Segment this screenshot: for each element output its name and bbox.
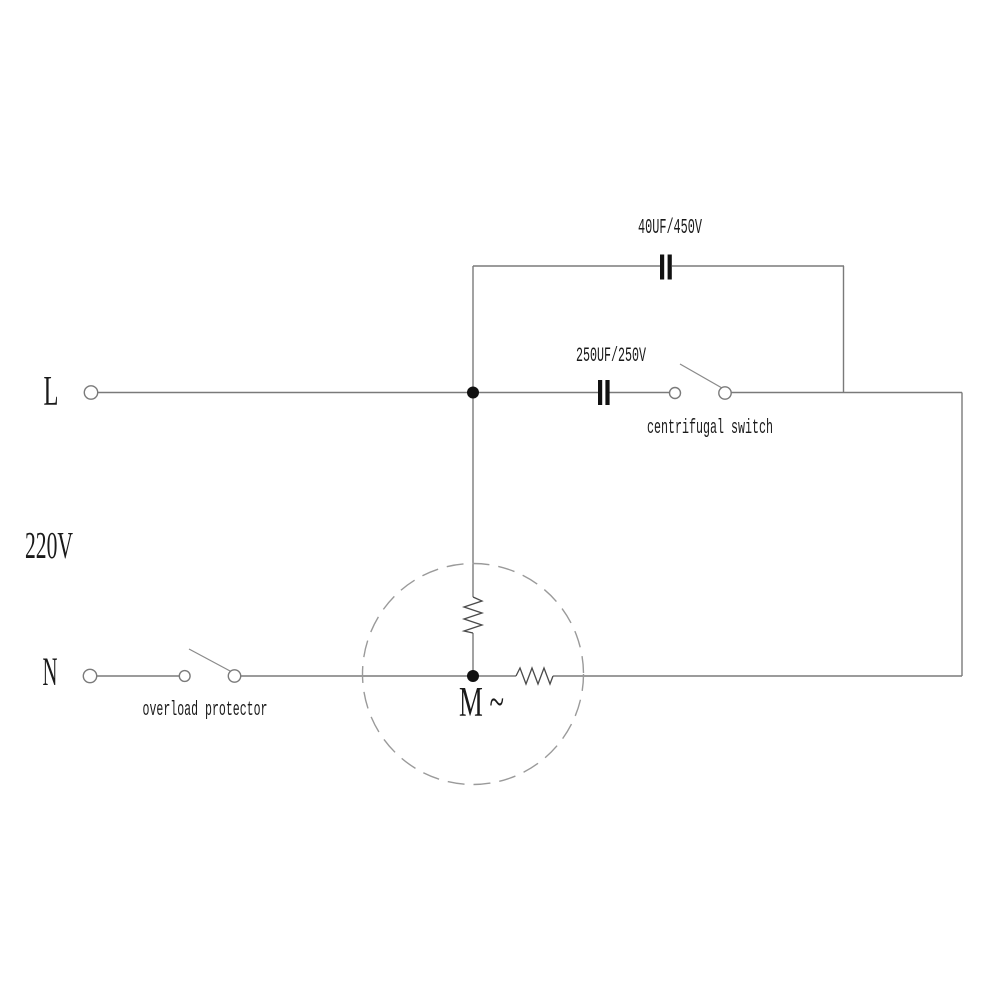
start-winding-resistor (516, 668, 553, 684)
run-capacitor (598, 380, 610, 405)
start-capacitor-plate-left (660, 255, 664, 280)
overload-protector-contact-left (179, 671, 190, 682)
overload-protector-blade (189, 649, 231, 672)
centrifugal-switch-label: centrifugal switch (647, 417, 773, 440)
terminal-l (84, 386, 97, 399)
main-winding-resistor (464, 597, 482, 633)
wires (97, 266, 963, 676)
terminal-n (83, 669, 96, 682)
wiring-diagram: 40UF/450V 250UF/250V centrifugal switch … (0, 0, 998, 998)
line-l-label: L (44, 369, 59, 415)
overload-protector-label: overload protector (143, 699, 268, 722)
centrifugal-switch-blade (680, 364, 722, 388)
overload-protector-switch (179, 649, 240, 682)
run-capacitor-plate-left (598, 380, 602, 405)
centrifugal-switch (670, 364, 732, 399)
centrifugal-switch-contact-left (670, 388, 681, 399)
start-capacitor (660, 255, 672, 280)
run-capacitor-label: 250UF/250V (576, 345, 646, 368)
junction-dot-l-branch (467, 387, 479, 399)
run-capacitor-plate-right (605, 380, 609, 405)
start-capacitor-plate-right (668, 255, 672, 280)
line-n-label: N (43, 649, 58, 694)
motor-label: M ~ (459, 680, 504, 726)
voltage-label: 220V (25, 525, 73, 567)
centrifugal-switch-contact-right (719, 387, 731, 399)
overload-protector-contact-right (228, 670, 240, 682)
start-capacitor-label: 40UF/450V (638, 217, 702, 240)
wiring-diagram-page: 40UF/450V 250UF/250V centrifugal switch … (0, 0, 998, 998)
